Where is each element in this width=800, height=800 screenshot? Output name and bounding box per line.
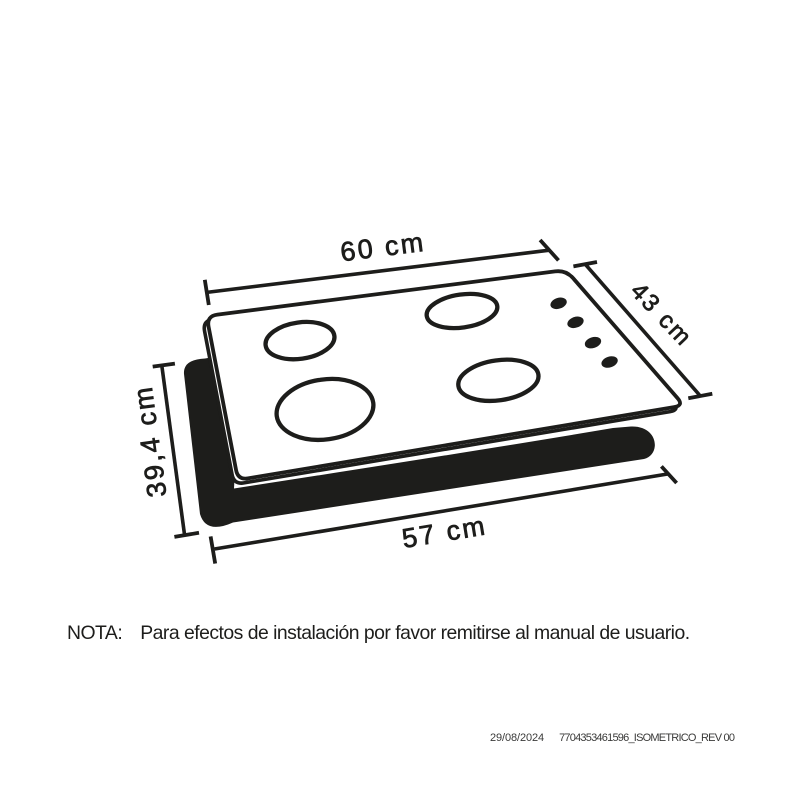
svg-text:43 cm: 43 cm	[625, 277, 698, 352]
svg-text:60 cm: 60 cm	[339, 227, 428, 267]
